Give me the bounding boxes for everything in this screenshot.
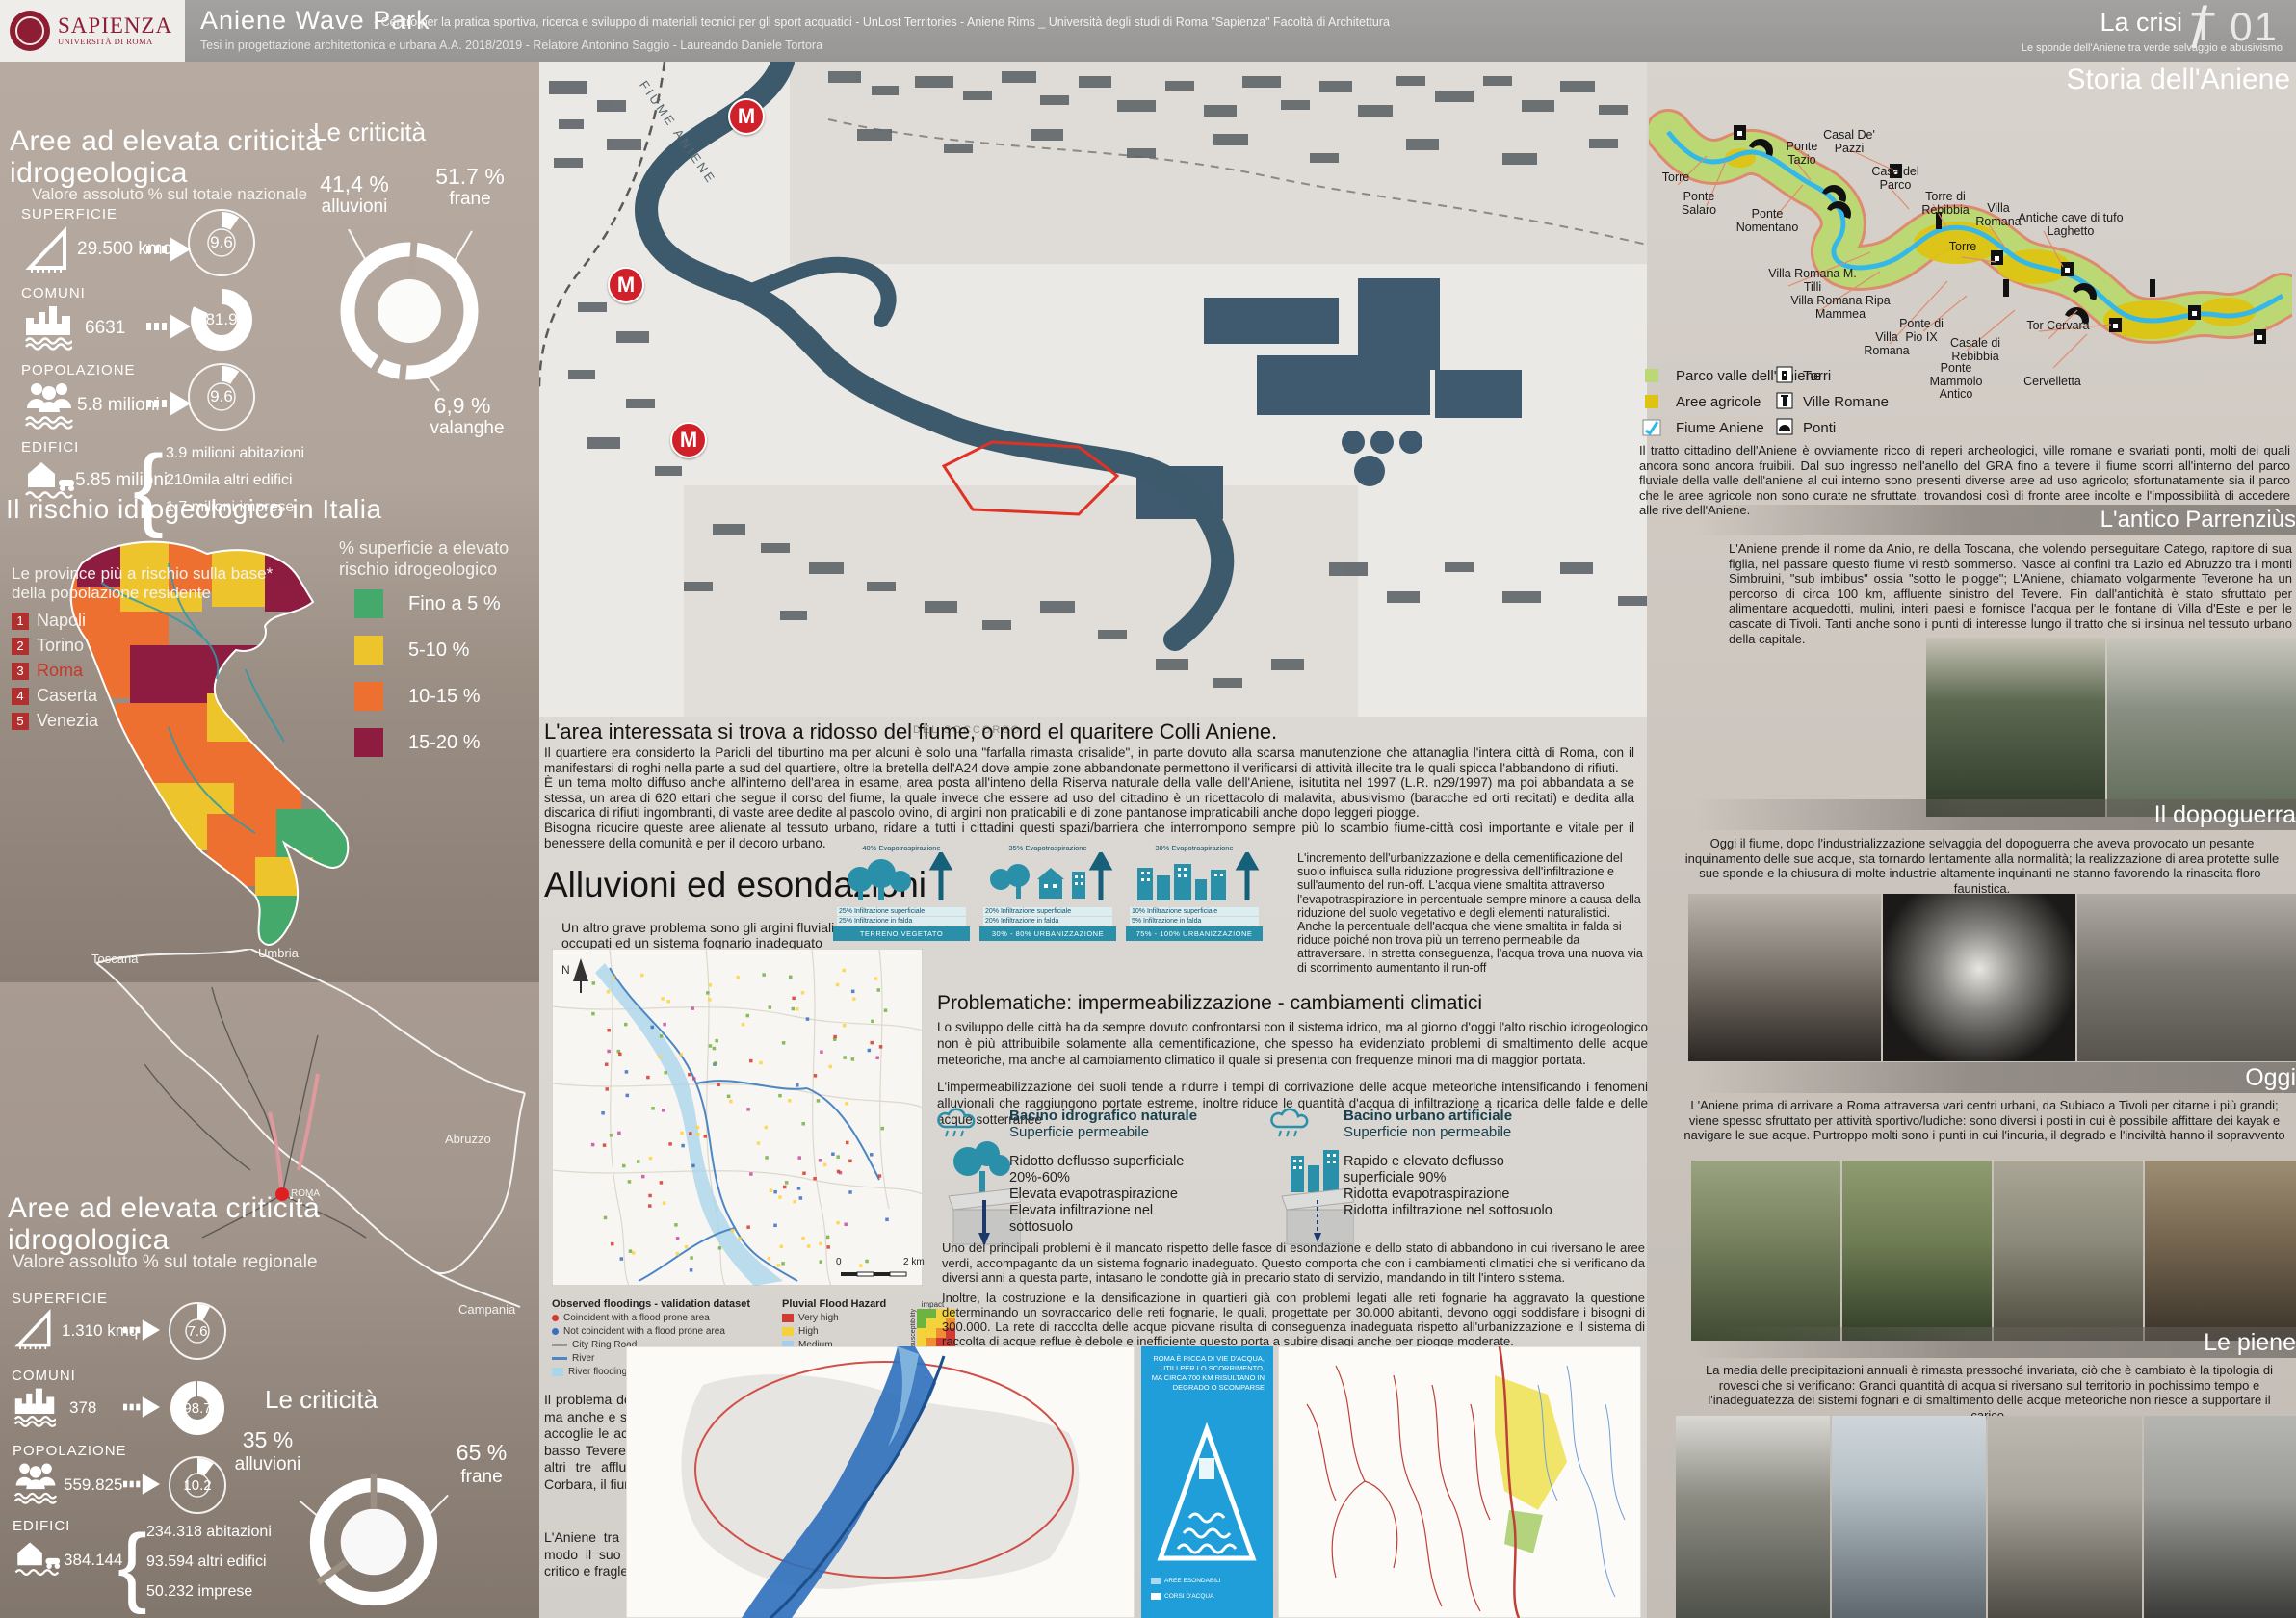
- photo-palazzi-verde: [2107, 638, 2296, 817]
- bluepanel-legend-2: CORSI D'ACQUA: [1151, 1593, 1213, 1600]
- pluvial-item-2: High: [782, 1326, 898, 1337]
- photo-baracche: [2077, 894, 2296, 1061]
- urbanization-diagram-3: 30% Evapotraspirazione 10% Infiltrazione…: [1126, 844, 1263, 941]
- criticita-reg-title: Le criticità: [265, 1385, 378, 1415]
- storia-label-villa-romana-m-tilli: Villa Romana M. Tilli: [1768, 268, 1857, 294]
- aniene-water-pictogram: [1157, 1422, 1258, 1566]
- province-rank-4: 4Caserta: [12, 686, 97, 706]
- storia-label-ponte-salaro: Ponte Salaro: [1672, 191, 1726, 217]
- metro-station-icon: M: [670, 422, 707, 458]
- storia-label-ponte-nomentano: Ponte Nomentano: [1726, 208, 1809, 234]
- stat-edifici-reg-value: 384.144: [64, 1551, 122, 1570]
- urbanized-terrain-icon: [1126, 852, 1263, 906]
- red-dot-icon: [552, 1315, 559, 1321]
- bacino-urbano-item-1: Rapido e elevato deflusso superficiale 9…: [1344, 1154, 1555, 1187]
- arrow-icon: [123, 1474, 160, 1495]
- area-p1: Il quartiere era considerto la Parioli d…: [544, 745, 1634, 775]
- antico-text: L'Aniene prende il nome da Anio, re dell…: [1729, 541, 2292, 646]
- urban-basin-icon: [1277, 1138, 1354, 1252]
- storia-label-torre-2: Torre: [1942, 241, 1984, 254]
- storia-label-casale-di-rebibbia: Casale di Rebibbia: [1938, 337, 2013, 363]
- photo-fiume-verde-1: [1691, 1161, 1840, 1341]
- legend-label-1: Fino a 5 %: [408, 593, 501, 615]
- stat-superficie-reg-label: SUPERFICIE: [12, 1291, 108, 1307]
- observed-legend-item-2: Not coincident with a flood prone area: [552, 1326, 769, 1337]
- photo-auto-allagate: [1988, 1416, 2142, 1618]
- legend-fiume-label: Fiume Aniene: [1676, 420, 1764, 436]
- provinces-title: Le province più a rischio sulla base*: [12, 564, 273, 584]
- area-title: L'area interessata si trova a ridosso de…: [544, 719, 1277, 744]
- regional-section-title: Aree ad elevata criticità idrogologica: [8, 1192, 374, 1256]
- swatch-high: [782, 1327, 794, 1336]
- photo-parco-allagato: [1676, 1416, 1830, 1618]
- legend-ponti-label: Ponti: [1803, 420, 1836, 436]
- logo-subtitle: UNIVERSITÀ DI ROMA: [58, 37, 172, 46]
- thesis-poster: M M M FIUME ANIENE DEL SOCCORSO SAPIENZA…: [0, 0, 2296, 1618]
- diagram-infiltration-1: 20% Infiltrazione superficiale: [983, 907, 1112, 916]
- criticita-title: Le criticità: [313, 117, 426, 147]
- bacino-urbano-subtitle: Superficie non permeabile: [1344, 1124, 1555, 1140]
- sapienza-logo: SAPIENZA UNIVERSITÀ DI ROMA: [0, 0, 185, 62]
- province-rank-2: 2Torino: [12, 636, 84, 656]
- people-icon: [13, 1460, 58, 1504]
- problems-p3: Uno dei principali problemi è il mancato…: [942, 1240, 1645, 1286]
- legend-swatch-red: [354, 728, 383, 757]
- piene-section-title: Le piene: [1695, 1327, 2296, 1358]
- water-infographic-panel: ROMA È RICCA DI VIE D'ACQUA, UTILI PER L…: [1141, 1346, 1273, 1618]
- photo-arco-fornace: [1883, 894, 2075, 1061]
- criticita-frane-label: frane: [422, 189, 518, 210]
- diagram-band-label: 30% - 80% URBANIZZAZIONE: [979, 926, 1116, 941]
- label-abruzzo: Abruzzo: [445, 1132, 491, 1146]
- stat-popolazione-reg-label: POPOLAZIONE: [13, 1443, 127, 1459]
- hazard-swatch-icon: [552, 1368, 563, 1376]
- legend-agricole-label: Aree agricole: [1676, 394, 1761, 410]
- edifici-reg-breakdown-2: 93.594 altri edifici: [146, 1553, 267, 1571]
- bluepanel-caption: ROMA È RICCA DI VIE D'ACQUA, UTILI PER L…: [1151, 1354, 1265, 1393]
- swatch-very-high: [782, 1314, 794, 1322]
- legend-label-3: 10-15 %: [408, 686, 481, 708]
- donut-superficie-nazionale: 9.6: [185, 206, 258, 279]
- legend-ville-label: Ville Romane: [1803, 394, 1889, 410]
- bacino-urbano-block: Bacino urbano artificiale Superficie non…: [1344, 1108, 1555, 1219]
- legend-parco-label: Parco valle dell'Aniene: [1676, 368, 1821, 384]
- donut-superficie-regionale: 7.6: [167, 1300, 228, 1362]
- poster-subtitle-2: Tesi in progettazione architettonica e u…: [200, 39, 822, 52]
- rome-flood-extent-map: [626, 1346, 1135, 1618]
- storia-label-casal-de-pazzi: Casal De' Pazzi: [1818, 129, 1880, 155]
- bacino-naturale-item-2: Elevata evapotraspirazione: [1009, 1187, 1202, 1203]
- storia-label-tor-cervara: Tor Cervara: [2019, 320, 2098, 333]
- criticita-reg-frane-value: 65 %: [438, 1440, 525, 1466]
- edifici-breakdown-2: 210mila altri edifici: [166, 472, 293, 489]
- city-icon: [24, 302, 72, 352]
- criticita-alluvioni-label: alluvioni: [306, 196, 403, 218]
- bluepanel-legend-1: AREE ESONDABILI: [1151, 1578, 1221, 1584]
- observed-legend-item-1: Coincident with a flood prone area: [552, 1313, 769, 1323]
- stat-comuni-value: 6631: [85, 318, 125, 339]
- urbanization-diagram-1: 40% Evapotraspirazione 25% Infiltrazione…: [833, 844, 970, 941]
- photo-rovine-torre: [1703, 638, 1924, 817]
- provinces-title-2: della popolazione residente: [12, 584, 211, 603]
- area-p2: È un tema molto diffuso anche all'intern…: [544, 775, 1634, 821]
- storia-label-ponte-mammolo: Ponte Mammolo Antico: [1918, 362, 1994, 402]
- regional-section-subtitle: Valore assoluto % sul totale regionale: [13, 1252, 318, 1273]
- stat-edifici-reg-label: EDIFICI: [13, 1518, 70, 1534]
- area-paragraphs: Il quartiere era considerto la Parioli d…: [544, 745, 1634, 850]
- diagram-band-label: 75% - 100% URBANIZZAZIONE: [1126, 926, 1263, 941]
- problematiche-p1: Lo sviluppo delle città ha da sempre dov…: [937, 1019, 1648, 1068]
- legend-ville-icon: [1775, 391, 1794, 410]
- photo-degrado-rive: [1994, 1161, 2143, 1341]
- photo-treno-vapore: [1688, 894, 1881, 1061]
- label-umbria: Umbria: [258, 946, 299, 960]
- bacino-naturale-item-3: Elevata infiltrazione nel sottosuolo: [1009, 1203, 1202, 1236]
- legend-parco-swatch: [1645, 369, 1658, 382]
- diagram-evapo-label: 30% Evapotraspirazione: [1126, 844, 1263, 852]
- storia-label-torre: Torre: [1655, 171, 1697, 185]
- diagram-infiltration-2: 25% Infiltrazione in falda: [837, 917, 966, 926]
- swatch-aree-esondabili: [1151, 1578, 1161, 1584]
- label-campania: Campania: [458, 1302, 515, 1317]
- metro-station-icon: M: [608, 267, 644, 303]
- matrix-susceptibility-label: susceptibility: [910, 1309, 917, 1347]
- bacino-urbano-title: Bacino urbano artificiale: [1344, 1108, 1555, 1124]
- criticita-alluvioni-value: 41,4 %: [306, 171, 403, 197]
- brace: {: [117, 1516, 147, 1617]
- photo-ponte-piena: [2144, 1416, 2296, 1618]
- problematiche-title: Problematiche: impermeabilizzazione - ca…: [937, 992, 1482, 1015]
- edifici-reg-breakdown-1: 234.318 abitazioni: [146, 1524, 272, 1541]
- pluvial-legend-title: Pluvial Flood Hazard: [782, 1298, 898, 1310]
- urbanization-diagram-2: 35% Evapotraspirazione 20% Infiltrazione…: [979, 844, 1116, 941]
- province-rank-5: 5Venezia: [12, 711, 98, 731]
- metro-station-icon: M: [728, 98, 765, 135]
- chapter-subtitle: Le sponde dell'Aniene tra verde selvaggi…: [2022, 42, 2283, 54]
- house-icon: [13, 1537, 67, 1578]
- antico-section-title: L'antico Parrenziùs: [1695, 505, 2296, 535]
- stat-comuni-reg-label: COMUNI: [12, 1368, 76, 1384]
- legend-torri-label: Torri: [1803, 368, 1831, 384]
- oggi-text: L'Aniene prima di arrivare a Roma attrav…: [1683, 1098, 2285, 1143]
- legend-ponti-icon: [1775, 417, 1794, 436]
- label-toscana: Toscana: [91, 952, 138, 966]
- stat-edifici-label: EDIFICI: [21, 439, 79, 456]
- legend-swatch-orange: [354, 682, 383, 711]
- observed-legend-title: Observed floodings - validation dataset: [552, 1298, 769, 1310]
- mixed-terrain-icon: [979, 852, 1116, 906]
- swatch-corsi-acqua: [1151, 1593, 1161, 1600]
- diagram-evapo-label: 35% Evapotraspirazione: [979, 844, 1116, 852]
- bacino-naturale-block: Bacino idrografico naturale Superficie p…: [1009, 1108, 1202, 1236]
- legend-label-2: 5-10 %: [408, 639, 469, 662]
- scale-2km: 2 km: [903, 1257, 925, 1267]
- criticita-valanghe-value: 6,9 %: [414, 393, 510, 419]
- ruler-icon: [24, 225, 70, 274]
- stat-comuni-reg-value: 378: [69, 1398, 96, 1418]
- bacino-naturale-subtitle: Superficie permeabile: [1009, 1124, 1202, 1140]
- criticita-valanghe-label: valanghe: [414, 418, 520, 439]
- criticita-reg-donut-chart: [294, 1466, 454, 1618]
- photo-fiume-marrone: [2145, 1161, 2296, 1341]
- urbanization-text: L'incremento dell'urbanizzazione e della…: [1297, 851, 1646, 975]
- criticita-reg-alluvioni-value: 35 %: [220, 1427, 316, 1453]
- criticita-frane-value: 51.7 %: [422, 164, 518, 190]
- legend-swatch-green: [354, 589, 383, 618]
- rain-cloud-icon: [936, 1106, 978, 1138]
- storia-label-villa-romana-ripa-mammea: Villa Romana Ripa Mammea: [1789, 295, 1892, 321]
- flood-risk-reaches: [270, 1074, 318, 1194]
- diagram-infiltration-2: 5% Infiltrazione in falda: [1130, 917, 1259, 926]
- poster-subtitle: - Centro per la pratica sportiva, ricerc…: [374, 15, 1390, 29]
- province-rank-3: 3Roma: [12, 661, 83, 681]
- legend-fiume-swatch: [1642, 419, 1661, 436]
- rain-cloud-icon: [1269, 1106, 1312, 1138]
- diagram-infiltration-1: 10% Infiltrazione superficiale: [1130, 907, 1259, 916]
- scale-bar: [841, 1272, 906, 1276]
- north-label: N: [561, 963, 570, 977]
- edifici-reg-breakdown-3: 50.232 imprese: [146, 1583, 252, 1601]
- people-icon: [24, 379, 74, 430]
- stat-popolazione-reg-value: 559.825: [64, 1475, 122, 1495]
- photo-fiume-verde-2: [1842, 1161, 1992, 1341]
- legend-agricole-swatch: [1645, 395, 1658, 408]
- diagram-evapo-label: 40% Evapotraspirazione: [833, 844, 970, 852]
- legend-torri-icon: [1775, 365, 1794, 384]
- alluvioni-note: Un altro grave problema sono gli argini …: [561, 920, 879, 951]
- donut-popolazione-nazionale: 9.6: [185, 360, 258, 433]
- bacino-urbano-item-2: Ridotta evapotraspirazione: [1344, 1187, 1555, 1203]
- logo-name: SAPIENZA: [58, 15, 172, 37]
- flood-observations-map: [552, 949, 923, 1286]
- city-icon: [13, 1385, 56, 1429]
- bacino-naturale-item-1: Ridotto deflusso superficiale 20%-60%: [1009, 1154, 1202, 1187]
- scale-zero: 0: [836, 1257, 842, 1267]
- arrow-icon: [123, 1319, 160, 1341]
- legend-swatch-yellow: [354, 636, 383, 665]
- italy-risk-title: Il rischio idrogeologico in Italia: [6, 493, 382, 525]
- diagram-infiltration-1: 25% Infiltrazione superficiale: [837, 907, 966, 916]
- dopoguerra-section-title: Il dopoguerra: [1695, 799, 2296, 830]
- bacino-urbano-item-3: Ridotta infiltrazione nel sottosuolo: [1344, 1203, 1555, 1219]
- blue-line-icon: [552, 1357, 567, 1360]
- storia-label-casa-del-parco: Casa del Parco: [1865, 166, 1926, 192]
- chapter-title: La crisi: [2100, 8, 2182, 38]
- legend-label-4: 15-20 %: [408, 732, 481, 754]
- diagram-band-label: TERRENO VEGETATO: [833, 926, 970, 941]
- italy-legend-title: % superficie a elevato rischio idrogeolo…: [339, 537, 541, 580]
- sapienza-emblem-icon: [10, 11, 50, 51]
- criticita-donut-chart: [327, 229, 491, 393]
- edifici-breakdown-1: 3.9 milioni abitazioni: [166, 445, 304, 462]
- ruler-icon: [13, 1308, 54, 1350]
- oggi-section-title: Oggi: [1695, 1062, 2296, 1093]
- piene-text: La media delle precipitazioni annuali è …: [1693, 1363, 2285, 1422]
- arrow-icon: [123, 1396, 160, 1418]
- gray-line-icon: [552, 1344, 567, 1346]
- storia-label-antiche-cave: Antiche cave di tufo Laghetto: [2009, 212, 2132, 238]
- pluvial-item-1: Very high: [782, 1313, 898, 1323]
- blue-dot-icon: [552, 1328, 559, 1335]
- stat-superficie-label: SUPERFICIE: [21, 206, 117, 222]
- stat-comuni-label: COMUNI: [21, 285, 86, 301]
- bacino-naturale-title: Bacino idrografico naturale: [1009, 1108, 1202, 1124]
- donut-comuni-nazionale: 81.9: [185, 283, 258, 356]
- stat-popolazione-label: POPOLAZIONE: [21, 362, 136, 378]
- diagram-infiltration-2: 20% Infiltrazione in falda: [983, 917, 1112, 926]
- storia-label-cervelletta: Cervelletta: [2013, 376, 2092, 389]
- vegetated-terrain-icon: [833, 852, 970, 906]
- photo-pioggia-strada: [1832, 1416, 1986, 1618]
- photo-parco-alberi: [1926, 638, 2105, 817]
- national-section-subtitle: Valore assoluto % sul totale nazionale: [32, 185, 307, 204]
- watershed-network-map: [1278, 1346, 1641, 1618]
- dopoguerra-text: Oggi il fiume, dopo l'industrializzazion…: [1683, 836, 2281, 896]
- problems-p4: Inoltre, la costruzione e la densificazi…: [942, 1291, 1645, 1348]
- province-rank-1: 1Napoli: [12, 611, 86, 631]
